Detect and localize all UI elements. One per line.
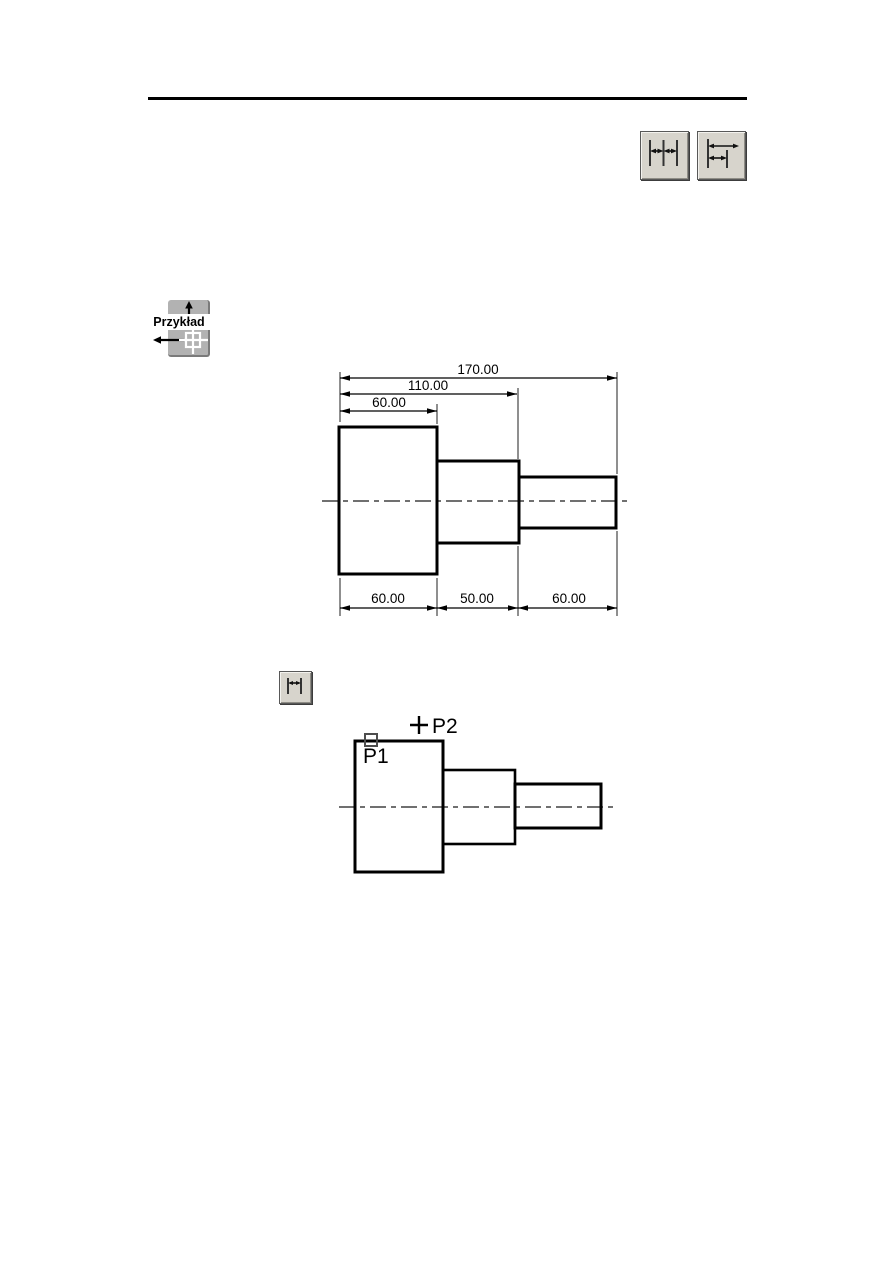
dim-label-seg1: 60.00 [371,591,405,606]
dimension-baseline-button[interactable] [697,131,746,180]
dimension-labels: 170.00 110.00 60.00 60.00 50.00 60.00 [371,362,586,606]
pick-point-p2-cross [410,716,428,734]
dim-label-seg2: 50.00 [460,591,494,606]
badge-cursor-icon [148,298,212,362]
figure-dimensioned-shaft: 170.00 110.00 60.00 60.00 50.00 60.00 [315,360,645,625]
figure-shaft-pick-points: P1 P2 [330,700,620,885]
document-page: Przykład [0,0,893,1263]
pick-point-p1-label: P1 [363,745,389,768]
dimension-continue-icon [641,132,686,177]
dim-label-first: 60.00 [372,395,406,410]
dim-label-mid: 110.00 [408,378,448,393]
dim-label-total: 170.00 [457,362,498,377]
dimension-linear-button[interactable] [279,671,312,704]
grid-crosshair-icon [179,326,208,354]
dimension-linear-icon [280,672,309,701]
dimension-baseline-icon [698,132,743,177]
dim-label-seg3: 60.00 [552,591,586,606]
pick-point-p2-label: P2 [432,715,458,738]
example-badge-button[interactable]: Przykład [148,298,212,362]
badge-label: Przykład [148,314,210,330]
dimension-continue-button[interactable] [640,131,689,180]
header-rule [148,97,747,100]
